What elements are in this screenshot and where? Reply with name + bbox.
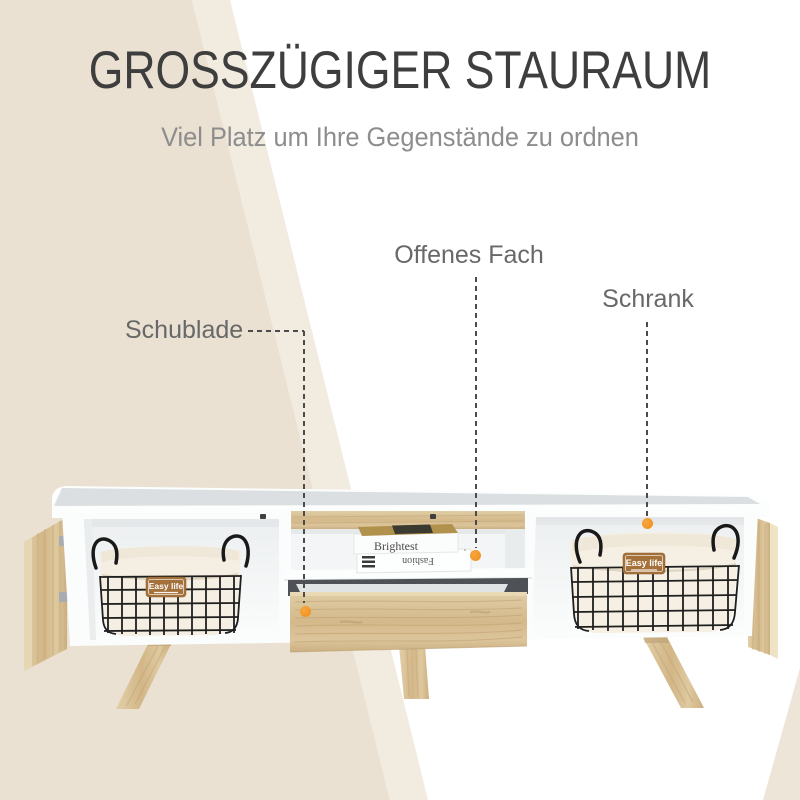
door-catch xyxy=(430,514,436,519)
callout-dot-drawer xyxy=(300,606,311,617)
right-leg xyxy=(643,637,704,708)
door-hinge xyxy=(59,592,68,602)
basket-tag: Easy life xyxy=(623,553,665,574)
scene-illustration: Fashion Brightest xyxy=(0,0,800,800)
bg-beige-wedge xyxy=(0,0,390,800)
callout-line-drawer-vertical xyxy=(303,331,305,603)
books: Fashion Brightest xyxy=(354,524,471,573)
book-top-title: Brightest xyxy=(374,539,419,553)
callout-line-cabinet xyxy=(646,322,648,516)
page-title: GROSSZÜGIGER STAURAUM xyxy=(64,40,736,101)
callout-line-open-shelf xyxy=(475,277,477,548)
basket-tag: Easy life xyxy=(146,577,186,597)
drawer xyxy=(290,592,527,652)
basket-tag-text: Easy life xyxy=(626,558,663,568)
callout-line-drawer-horizontal xyxy=(248,330,304,332)
callout-label-open-shelf: Offenes Fach xyxy=(369,241,569,270)
callout-dot-open-shelf xyxy=(470,550,481,561)
door-catch xyxy=(260,514,266,519)
wire-basket-left: Easy life xyxy=(93,536,248,636)
basket-tag-text: Easy life xyxy=(149,581,184,591)
product-infographic: Fashion Brightest xyxy=(0,0,800,800)
center-leg xyxy=(399,646,429,699)
book-top: Brightest xyxy=(354,524,458,554)
callout-label-cabinet: Schrank xyxy=(598,285,698,314)
bg-corner-wedge xyxy=(763,668,800,800)
wire-basket-right: Easy life xyxy=(570,526,739,633)
page-subtitle: Viel Platz um Ihre Gegenstände zu ordnen xyxy=(24,122,776,153)
left-cabinet-door xyxy=(24,517,68,671)
callout-label-drawer: Schublade xyxy=(125,316,243,345)
callout-dot-cabinet xyxy=(642,518,653,529)
book-bottom-title: Fashion xyxy=(402,555,434,566)
